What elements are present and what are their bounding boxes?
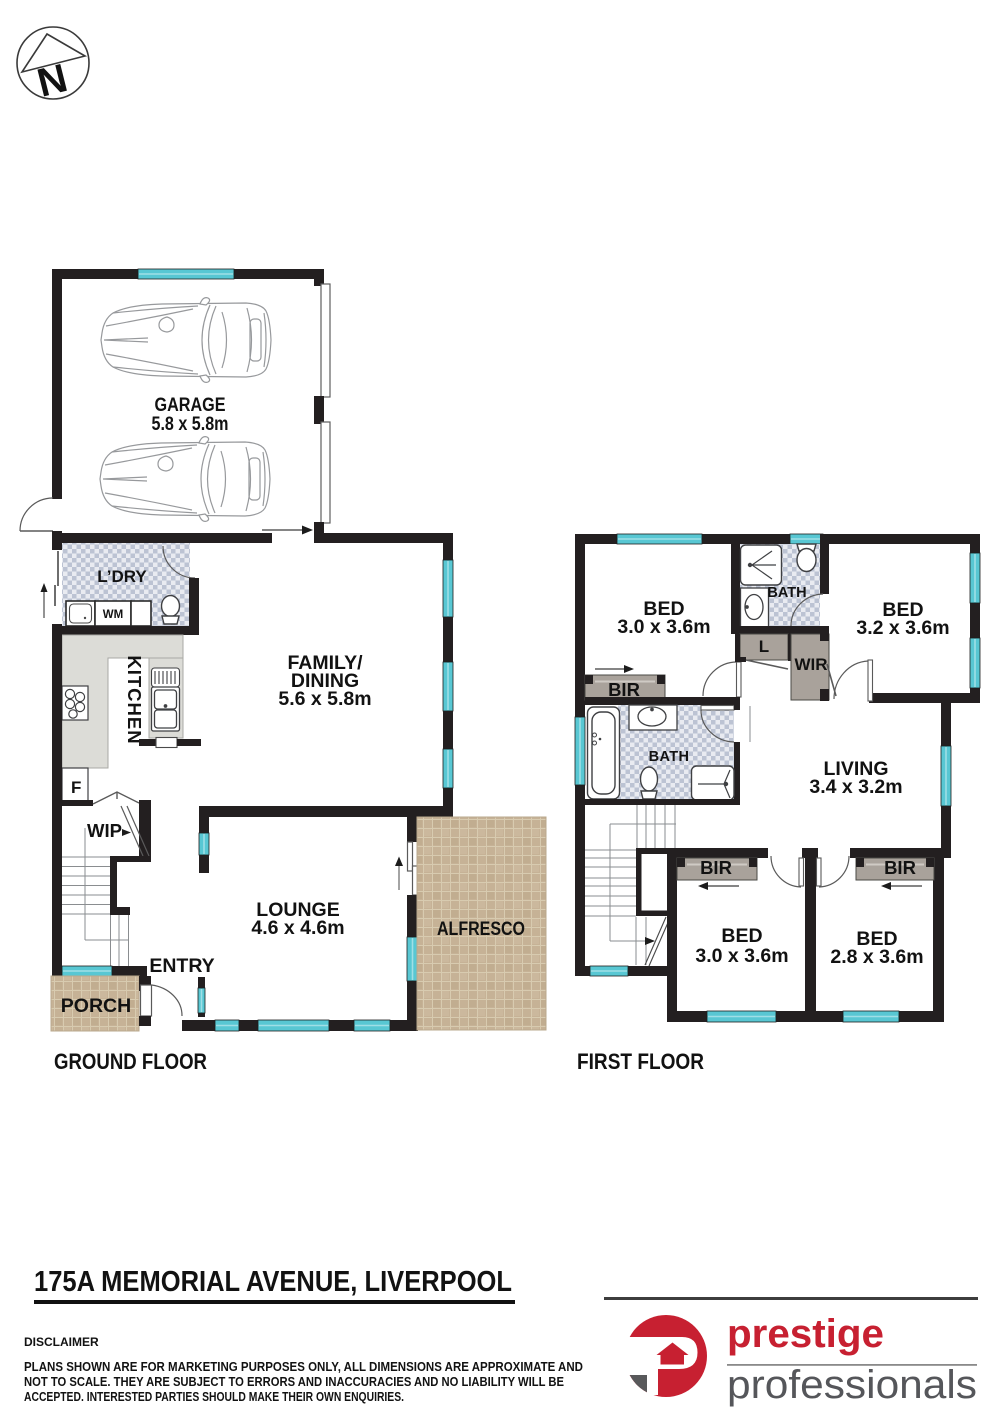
svg-text:BIR: BIR xyxy=(884,857,916,878)
svg-text:L’DRY: L’DRY xyxy=(97,567,147,586)
svg-text:BIR: BIR xyxy=(608,679,640,700)
svg-text:BED: BED xyxy=(721,925,762,947)
svg-text:3.0 x 3.6m: 3.0 x 3.6m xyxy=(695,945,788,967)
svg-text:WM: WM xyxy=(103,609,123,621)
svg-text:ACCEPTED. INTERESTED PARTIES S: ACCEPTED. INTERESTED PARTIES SHOULD MAKE… xyxy=(24,1390,404,1404)
svg-text:L: L xyxy=(759,637,769,656)
svg-text:ALFRESCO: ALFRESCO xyxy=(437,918,525,940)
svg-text:DISCLAIMER: DISCLAIMER xyxy=(24,1335,99,1349)
svg-text:3.0 x 3.6m: 3.0 x 3.6m xyxy=(617,616,710,638)
svg-text:WIP: WIP xyxy=(87,820,122,841)
svg-text:5.6 x 5.8m: 5.6 x 5.8m xyxy=(278,688,371,710)
svg-text:5.8 x 5.8m: 5.8 x 5.8m xyxy=(152,413,229,435)
svg-text:PORCH: PORCH xyxy=(61,995,131,1017)
svg-text:BATH: BATH xyxy=(767,585,806,601)
svg-text:ENTRY: ENTRY xyxy=(149,955,214,977)
svg-text:2.8 x 3.6m: 2.8 x 3.6m xyxy=(830,946,923,968)
svg-text:4.6 x 4.6m: 4.6 x 4.6m xyxy=(251,917,344,939)
svg-text:175A MEMORIAL AVENUE, LIVERPOO: 175A MEMORIAL AVENUE, LIVERPOOL xyxy=(34,1266,512,1298)
svg-text:BIR: BIR xyxy=(700,857,732,878)
svg-text:NOT TO SCALE. THEY ARE SUBJECT: NOT TO SCALE. THEY ARE SUBJECT TO ERRORS… xyxy=(24,1375,564,1389)
svg-text:professionals: professionals xyxy=(727,1363,977,1407)
svg-text:GROUND FLOOR: GROUND FLOOR xyxy=(54,1049,207,1074)
svg-text:3.4 x 3.2m: 3.4 x 3.2m xyxy=(809,776,902,798)
svg-text:KITCHEN: KITCHEN xyxy=(124,655,145,744)
svg-text:FIRST FLOOR: FIRST FLOOR xyxy=(577,1049,704,1074)
svg-text:3.2 x 3.6m: 3.2 x 3.6m xyxy=(856,617,949,639)
svg-text:prestige: prestige xyxy=(727,1312,884,1356)
svg-text:BATH: BATH xyxy=(649,749,690,765)
svg-text:F: F xyxy=(71,778,81,797)
svg-text:PLANS SHOWN ARE FOR MARKETING: PLANS SHOWN ARE FOR MARKETING PURPOSES O… xyxy=(24,1360,583,1374)
svg-text:WIR: WIR xyxy=(794,655,827,674)
